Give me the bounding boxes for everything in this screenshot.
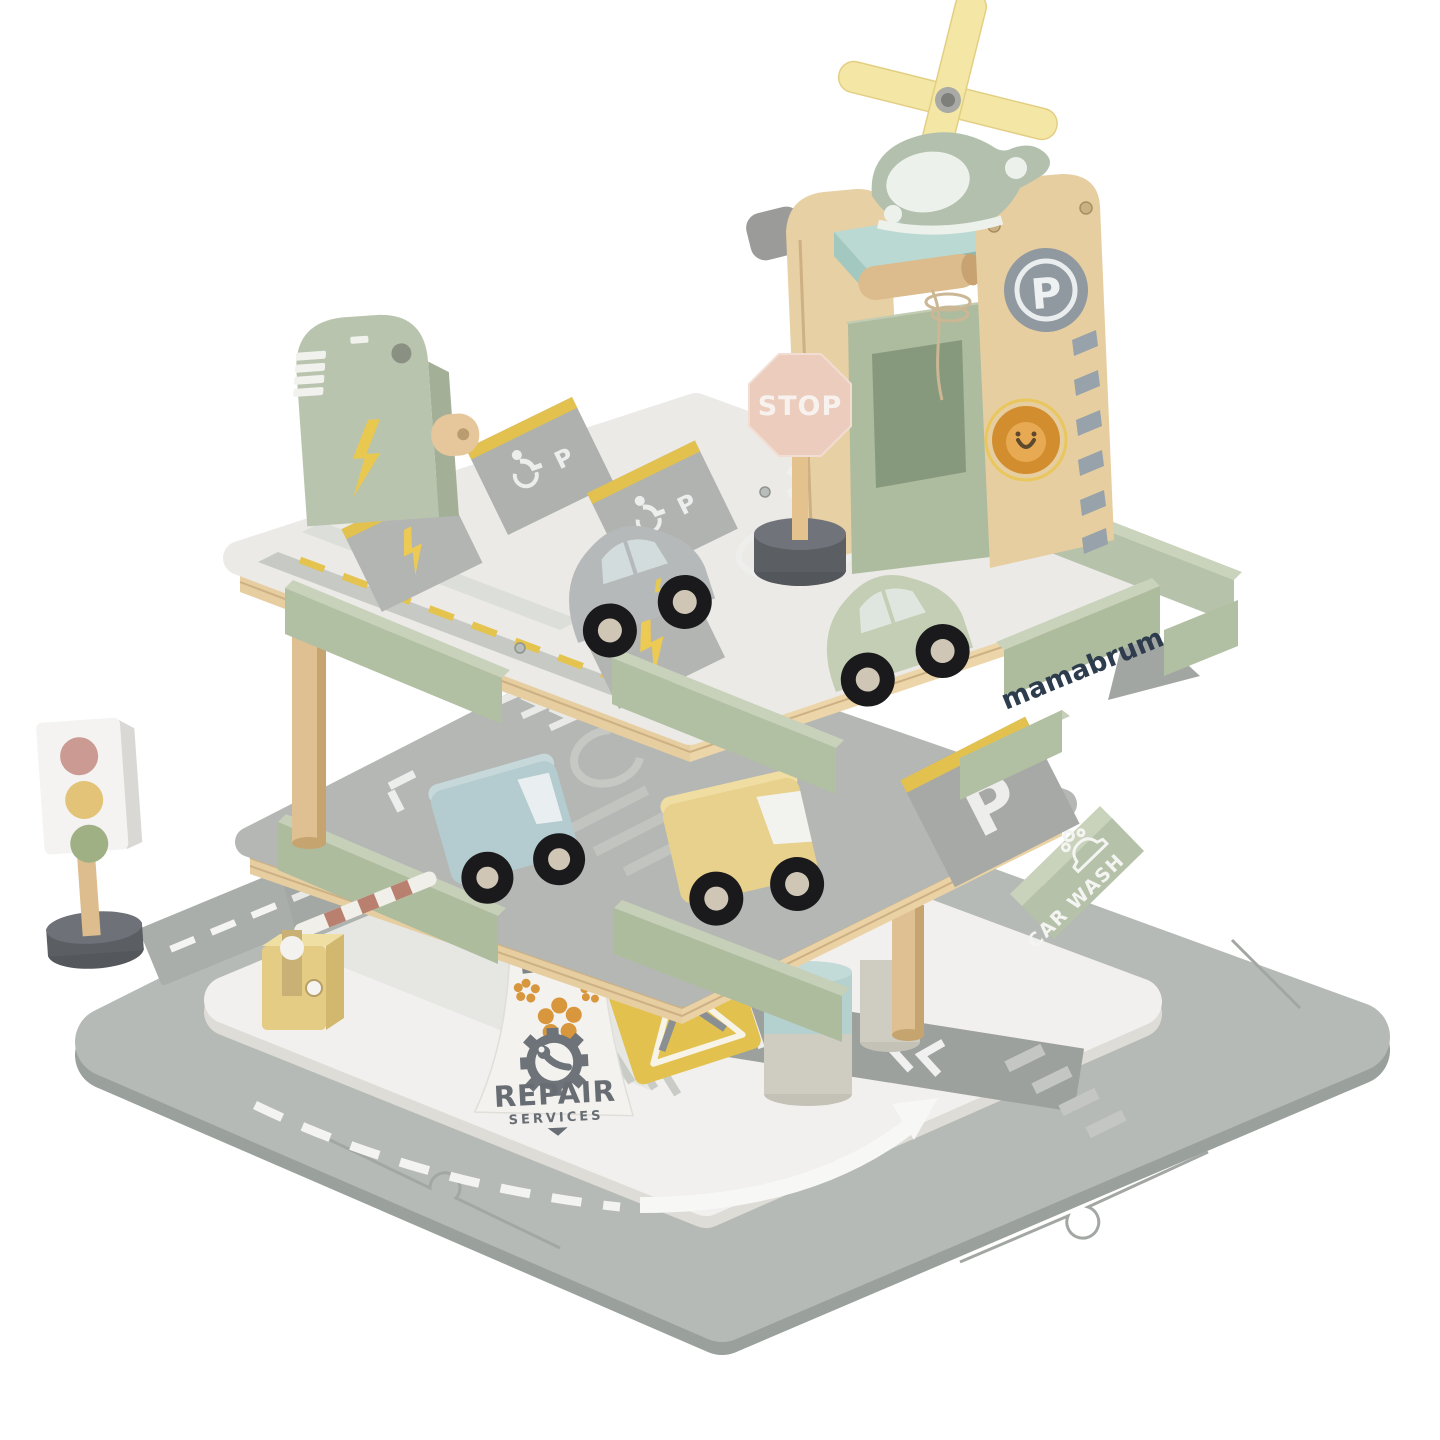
stop-text: STOP (758, 391, 843, 422)
lion-icon (986, 400, 1066, 480)
tower-p-letter: P (1029, 268, 1064, 319)
elevator-opening (872, 340, 966, 488)
guardrail (1164, 600, 1238, 676)
station-front (293, 312, 439, 527)
gate-hole (306, 980, 322, 996)
tail-window (1005, 157, 1027, 179)
wooden-dowel (892, 905, 924, 1041)
charging-station (288, 308, 485, 526)
traffic-light (32, 716, 151, 972)
product-photo: REPAIR SERVICES (0, 0, 1440, 1440)
toy-garage-scene: REPAIR SERVICES (0, 0, 1440, 1440)
